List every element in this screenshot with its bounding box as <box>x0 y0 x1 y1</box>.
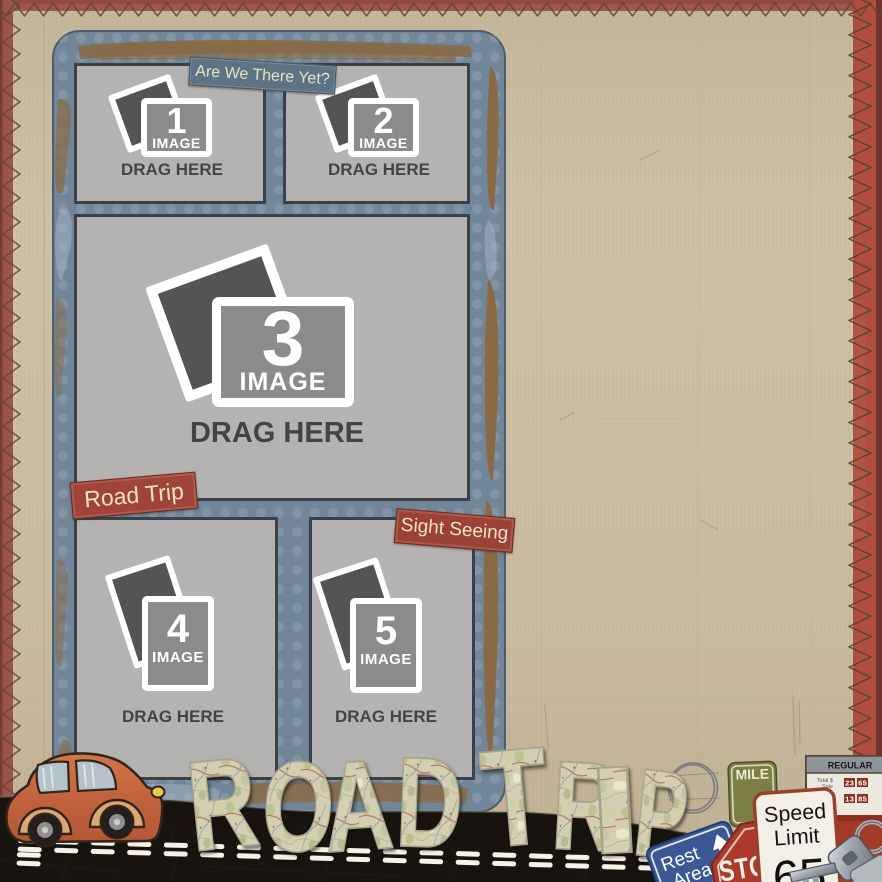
svg-text:REGULAR: REGULAR <box>828 761 873 771</box>
svg-text:23: 23 <box>845 781 855 789</box>
svg-text:T: T <box>476 719 554 876</box>
svg-text:MILE: MILE <box>735 765 769 782</box>
svg-text:65: 65 <box>858 781 868 789</box>
svg-text:85: 85 <box>858 797 868 805</box>
svg-text:Limit: Limit <box>773 823 820 850</box>
svg-text:A: A <box>320 734 397 878</box>
svg-text:D: D <box>394 732 464 874</box>
svg-text:13: 13 <box>845 797 855 805</box>
svg-text:R: R <box>182 732 264 878</box>
